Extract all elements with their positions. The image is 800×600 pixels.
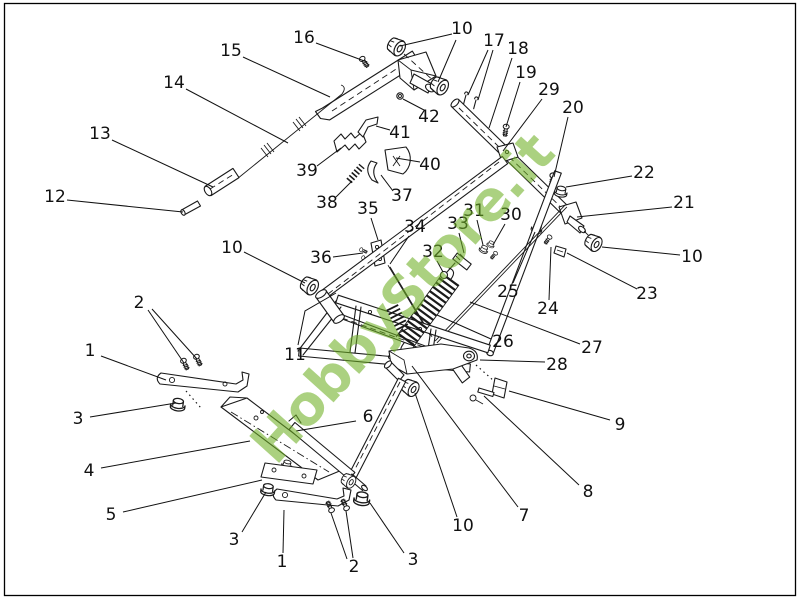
part-number-label: 10 bbox=[221, 238, 243, 258]
part-number-label: 2 bbox=[349, 557, 360, 577]
part-number-label: 2 bbox=[134, 293, 145, 313]
part-number-label: 20 bbox=[562, 98, 584, 118]
part-number-label: 6 bbox=[363, 407, 374, 427]
part-number-label: 35 bbox=[357, 199, 379, 219]
part-number-label: 39 bbox=[296, 161, 318, 181]
part-number-label: 7 bbox=[519, 506, 530, 526]
part-number-label: 15 bbox=[220, 41, 242, 61]
part-number-label: 23 bbox=[636, 284, 658, 304]
part-number-label: 38 bbox=[316, 193, 338, 213]
part-number-label: 27 bbox=[581, 338, 603, 358]
part-number-label: 5 bbox=[106, 505, 117, 525]
part-number-label: 21 bbox=[673, 193, 695, 213]
part-number-label: 8 bbox=[583, 482, 594, 502]
plate-40 bbox=[385, 147, 410, 174]
anchor-plate-9 bbox=[492, 378, 507, 398]
parts-diagram-page: 1615101718192920141312424139403837353634… bbox=[0, 0, 800, 600]
part-number-label: 10 bbox=[451, 19, 473, 39]
part-number-label: 17 bbox=[483, 31, 505, 51]
part-number-label: 41 bbox=[389, 123, 411, 143]
part-number-label: 19 bbox=[515, 63, 537, 83]
part-number-label: 9 bbox=[615, 415, 626, 435]
part-number-label: 36 bbox=[310, 248, 332, 268]
part-number-label: 10 bbox=[452, 516, 474, 536]
part-number-label: 26 bbox=[492, 332, 514, 352]
part-number-label: 10 bbox=[681, 247, 703, 267]
part-number-label: 3 bbox=[73, 409, 84, 429]
part-number-label: 4 bbox=[84, 461, 95, 481]
part-number-label: 3 bbox=[408, 550, 419, 570]
part-number-label: 28 bbox=[546, 355, 568, 375]
part-number-label: 13 bbox=[89, 124, 111, 144]
part-number-label: 3 bbox=[229, 530, 240, 550]
part-number-label: 40 bbox=[419, 155, 441, 175]
part-number-label: 22 bbox=[633, 163, 655, 183]
part-number-label: 1 bbox=[277, 552, 288, 572]
part-number-label: 37 bbox=[391, 186, 413, 206]
part-number-label: 16 bbox=[293, 28, 315, 48]
part-number-label: 14 bbox=[163, 73, 185, 93]
part-number-label: 24 bbox=[537, 299, 559, 319]
nut-42 bbox=[397, 93, 403, 99]
part-number-label: 18 bbox=[507, 39, 529, 59]
part-number-label: 25 bbox=[497, 282, 519, 302]
part-number-label: 1 bbox=[85, 341, 96, 361]
exploded-diagram-canvas: 1615101718192920141312424139403837353634… bbox=[0, 0, 800, 600]
part-number-label: 12 bbox=[44, 187, 66, 207]
part-number-label: 42 bbox=[418, 107, 440, 127]
part-number-label: 29 bbox=[538, 80, 560, 100]
